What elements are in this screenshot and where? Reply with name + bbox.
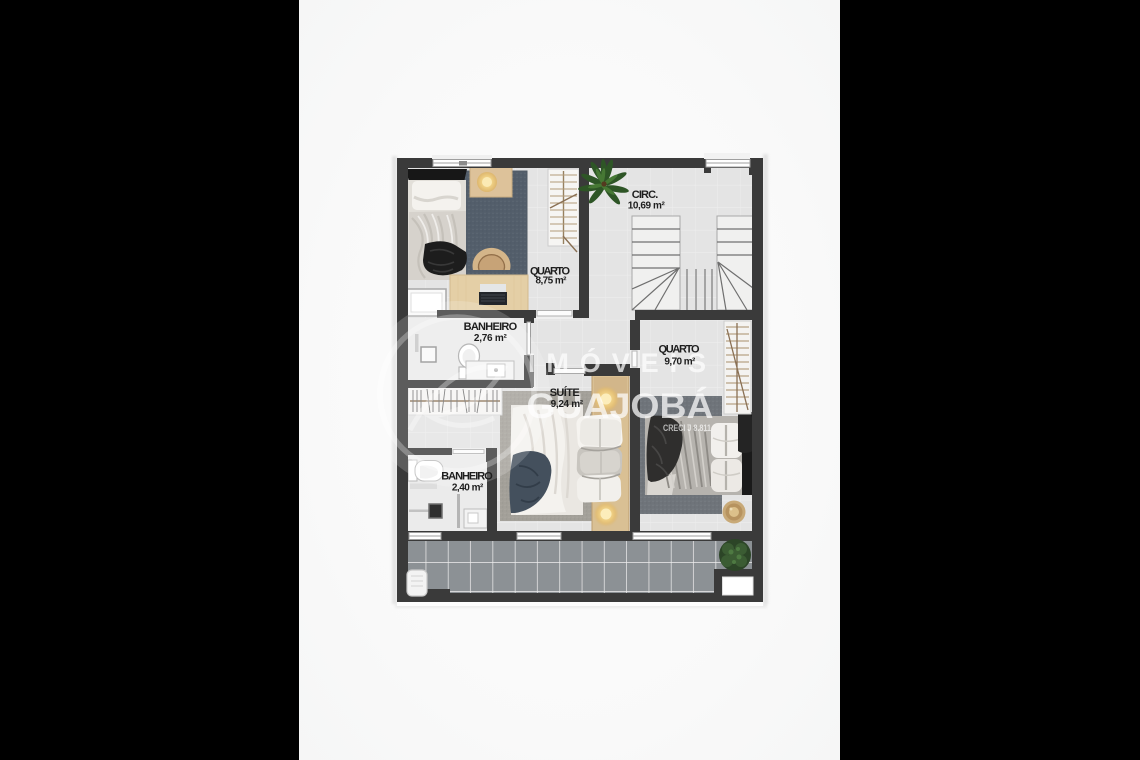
svg-text:8,75 m²: 8,75 m²: [536, 276, 568, 287]
svg-text:BANHEIRO: BANHEIRO: [441, 471, 493, 483]
svg-text:CIRC.: CIRC.: [632, 189, 659, 201]
svg-text:10,69 m²: 10,69 m²: [628, 201, 666, 212]
svg-text:QUARTO: QUARTO: [659, 344, 700, 356]
svg-text:2,76 m²: 2,76 m²: [474, 333, 508, 344]
svg-text:9,24 m²: 9,24 m²: [551, 399, 584, 410]
svg-text:BANHEIRO: BANHEIRO: [464, 321, 518, 333]
svg-text:2,40 m²: 2,40 m²: [452, 483, 484, 494]
svg-text:SUÍTE: SUÍTE: [550, 386, 580, 399]
svg-text:9,70 m²: 9,70 m²: [664, 357, 696, 368]
svg-text:CRECI J 8.811: CRECI J 8.811: [663, 423, 711, 433]
